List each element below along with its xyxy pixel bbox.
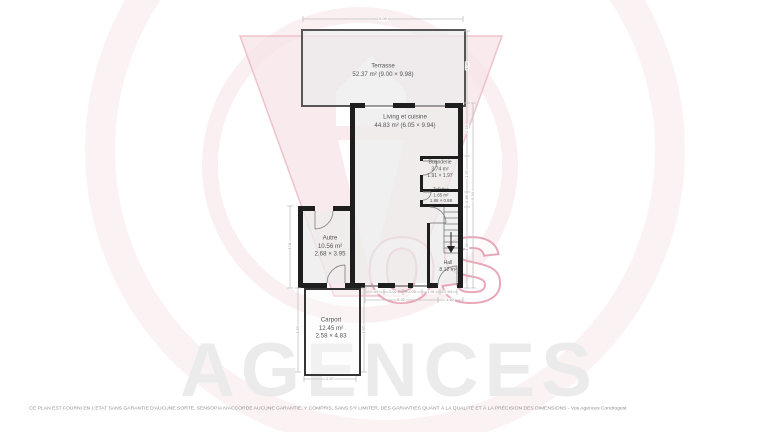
dimension-label: 1.60 <box>446 298 455 302</box>
room-label-living: Living et cuisine 44.83 m² (6.05 × 9.94) <box>374 113 435 129</box>
room-dims: 1.91 × 1.97 <box>427 172 452 179</box>
room-area: 44.83 m² (6.05 × 9.94) <box>374 121 435 129</box>
dimension-label: 2.57 <box>326 377 335 381</box>
footer-disclaimer: CE PLAN EST FOURNI EN L'ETAT SANS GARANT… <box>29 405 626 411</box>
dimension-label: 9.00 <box>379 17 388 21</box>
room-name: Terrasse <box>352 62 413 70</box>
dimension-label: 9.94 <box>471 192 475 201</box>
dimension-label: 2.53 <box>465 125 469 134</box>
stairs-down-arrow-icon <box>447 246 455 253</box>
room-name: Autre <box>314 234 345 242</box>
room-name: Buanderie <box>427 159 452 166</box>
room-label-carport: Carport 12.45 m² 2.58 × 4.83 <box>315 316 346 340</box>
room-name: Carport <box>315 316 346 324</box>
dimension-label: 1.91 <box>427 290 436 294</box>
room-area: 12.45 m² <box>315 324 346 332</box>
dimension-label: 4.46 <box>465 243 469 252</box>
room-area: 10.56 m² <box>314 242 345 250</box>
room-area: 52.37 m² (9.00 × 9.98) <box>352 70 413 78</box>
dimension-label: 2.02 <box>389 290 398 294</box>
room-label-terrasse: Terrasse 52.37 m² (9.00 × 9.98) <box>352 62 413 78</box>
door-arc-autre-bottom <box>327 265 345 283</box>
dimension-label: 0.94 <box>370 290 379 294</box>
dimension-label: 4.03 <box>465 62 469 71</box>
dimension-label: 2.05 <box>408 290 417 294</box>
room-area: 8.12 m² <box>439 266 456 273</box>
room-area: 3.74 m² <box>427 166 452 173</box>
dimension-label: 4.83 <box>362 326 366 335</box>
room-label-autre: Autre 10.56 m² 2.68 × 3.95 <box>314 234 345 258</box>
dimension-label: 4.01 <box>288 242 292 251</box>
dimension-label: 4.83 <box>296 326 300 335</box>
room-dims: 2.58 × 4.83 <box>315 332 346 340</box>
dimension-label: 0.88 <box>465 195 469 204</box>
room-dims: 2.68 × 3.95 <box>314 250 345 258</box>
door-arc-toilettes <box>423 192 431 200</box>
room-name: Living et cuisine <box>374 113 435 121</box>
room-label-hall: Hall 8.12 m² <box>439 259 456 272</box>
dimension-label: 6.32 <box>397 298 406 302</box>
room-label-buanderie: Buanderie 3.74 m² 1.91 × 1.97 <box>427 159 452 179</box>
room-name: Hall <box>439 259 456 266</box>
floor-plan-page: os AGENCES Toilettes 1.65 m² 1.88 × 0.88 <box>0 0 768 432</box>
door-arc-autre-top <box>315 211 333 229</box>
dimension-label: 1.97 <box>465 170 469 179</box>
dimension-label: 0.94 <box>444 290 453 294</box>
